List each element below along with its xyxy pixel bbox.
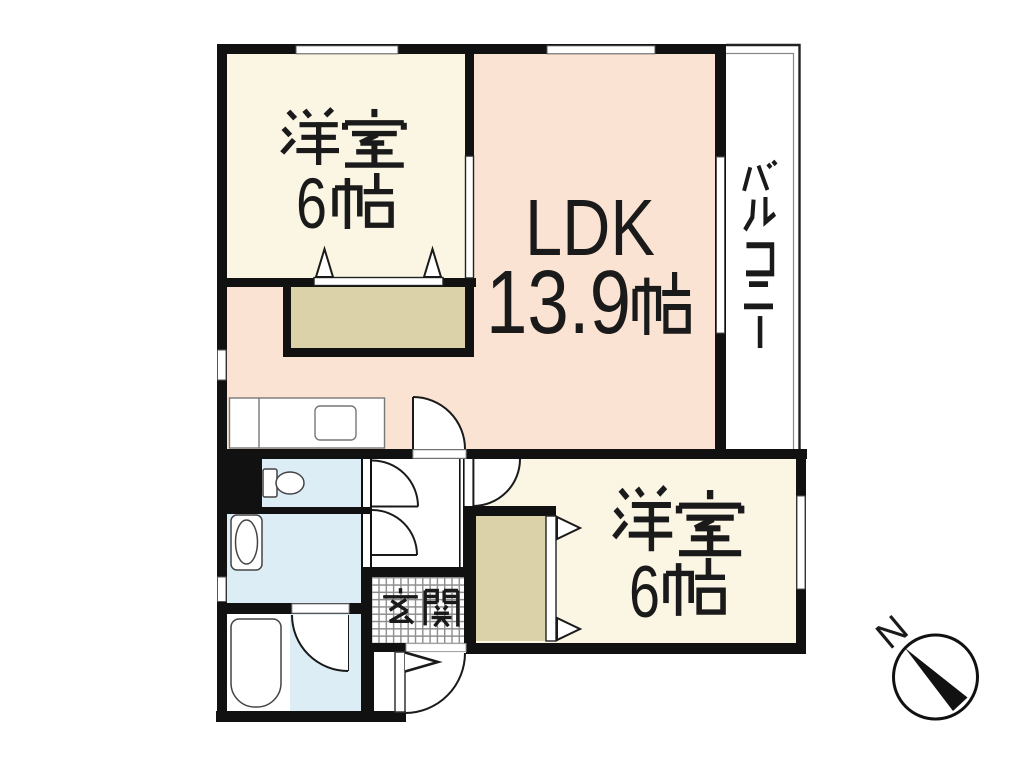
svg-text:13.9: 13.9: [486, 253, 631, 353]
svg-text:6: 6: [296, 165, 327, 244]
svg-text:6: 6: [629, 552, 660, 633]
